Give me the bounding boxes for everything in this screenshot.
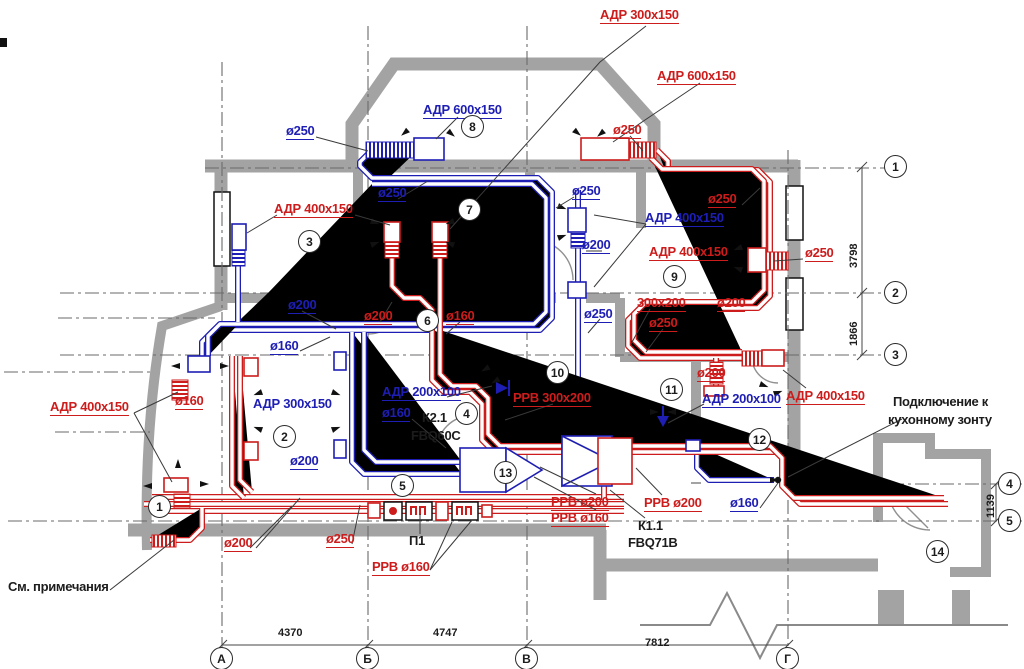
axis-bubble-В: В <box>515 647 538 669</box>
label-ø250-4: ø250 <box>286 124 314 140</box>
exhaust-diffuser-room7 <box>432 222 448 242</box>
supply-diffuser-room2-top <box>334 352 346 370</box>
label-адр-400x150-11: АДР 400x150 <box>649 245 728 261</box>
axis-bubble-Г: Г <box>776 647 799 669</box>
label-ø200-17: ø200 <box>288 298 316 314</box>
ventilation-plan: АДР 300x150АДР 600x150ø250АДР 600x150ø25… <box>0 0 1024 669</box>
label-кухонному-зонту-33: кухонному зонту <box>888 413 992 427</box>
label-адр-400x150-9: АДР 400x150 <box>645 211 724 227</box>
room-number-2: 2 <box>273 425 296 448</box>
fan-unit-k1-1 <box>562 436 632 486</box>
label-ø200-10: ø200 <box>582 238 610 254</box>
exhaust-diffuser-hall <box>164 478 188 492</box>
label-1866-50: 1866 <box>849 322 861 346</box>
label-ø160-22: ø160 <box>175 394 203 410</box>
exhaust-diffuser-room2-top <box>244 358 258 376</box>
label-ррв-ø200-35: РРВ ø200 <box>551 495 609 511</box>
room-number-6: 6 <box>416 309 439 332</box>
label-адр-400x150-31: АДР 400x150 <box>786 389 865 405</box>
room-number-9: 9 <box>663 265 686 288</box>
exhaust-grille-kitchen <box>762 350 784 366</box>
supply-diffuser-room8 <box>414 138 444 160</box>
room-number-4: 4 <box>455 402 478 425</box>
exhaust-diffuser-room9 <box>748 248 766 272</box>
label-fbq60c-27: FBQ60C <box>411 429 461 443</box>
label-п1-43: П1 <box>409 534 425 548</box>
supply-diffuser-room3 <box>232 224 246 250</box>
room-number-11: 11 <box>660 378 683 401</box>
label-ррв-ø160-36: РРВ ø160 <box>551 511 609 527</box>
label-300x200-13: 300x200 <box>637 296 686 312</box>
label-4747-47: 4747 <box>433 628 457 640</box>
label-ø250-8: ø250 <box>708 192 736 208</box>
label-ø200-14: ø200 <box>717 296 745 312</box>
axis-bubble-2: 2 <box>884 281 907 304</box>
label-ø200-34: ø200 <box>290 454 318 470</box>
label-1139-51: 1139 <box>986 494 998 518</box>
room-number-12: 12 <box>748 428 771 451</box>
label-адр-300x150-0: АДР 300x150 <box>600 8 679 24</box>
label-ø250-12: ø250 <box>805 246 833 262</box>
label-ø250-42: ø250 <box>326 532 354 548</box>
supply-diffuser-room2-bottom <box>334 440 346 458</box>
plan-canvas <box>0 0 1024 669</box>
room-number-8: 8 <box>461 115 484 138</box>
label-ррв-300x200-28: РРВ 300x200 <box>513 391 591 407</box>
label-ø250-2: ø250 <box>613 123 641 139</box>
label-адр-600x150-1: АДР 600x150 <box>657 69 736 85</box>
label-ø250-15: ø250 <box>649 316 677 332</box>
room-number-10: 10 <box>546 361 569 384</box>
label-адр-400x150-23: АДР 400x150 <box>50 400 129 416</box>
axis-bubble-5: 5 <box>998 509 1021 532</box>
label-ø250-7: ø250 <box>572 184 600 200</box>
room-number-14: 14 <box>926 540 949 563</box>
supply-unit-p1 <box>368 502 492 520</box>
label-ø200-29: ø200 <box>697 366 725 382</box>
label-fbq71b-40: FBQ71B <box>628 536 678 550</box>
label-ø160-20: ø160 <box>446 309 474 325</box>
exhaust-diffuser-room6 <box>384 222 400 242</box>
label-адр-200x100-24: АДР 200x100 <box>382 385 461 401</box>
label-ø200-41: ø200 <box>224 536 252 552</box>
label-ø160-38: ø160 <box>730 496 758 512</box>
exhaust-diffuser-room2-bottom <box>244 442 258 460</box>
label-к1-1-39: К1.1 <box>638 519 663 533</box>
label-ø160-18: ø160 <box>270 339 298 355</box>
axis-bubble-3: 3 <box>884 343 907 366</box>
axis-bubble-Б: Б <box>356 647 379 669</box>
supply-stub-room12 <box>686 440 700 451</box>
label-подключение-к-32: Подключение к <box>893 395 988 409</box>
label-ø200-19: ø200 <box>364 309 392 325</box>
label-адр-300x150-21: АДР 300x150 <box>253 397 332 411</box>
label-адр-200x100-30: АДР 200x100 <box>702 392 781 408</box>
supply-diffuser-room9-bottom <box>568 282 586 298</box>
label-ø250-5: ø250 <box>378 186 406 202</box>
label-ррв-ø200-37: РРВ ø200 <box>644 496 702 512</box>
axis-bubble-1: 1 <box>884 155 907 178</box>
room-number-1: 1 <box>148 495 171 518</box>
supply-diffuser-room1 <box>188 356 210 372</box>
room-number-5: 5 <box>391 474 414 497</box>
label-ррв-ø160-44: РРВ ø160 <box>372 560 430 576</box>
axis-bubble-А: А <box>210 647 233 669</box>
room-number-7: 7 <box>458 198 481 221</box>
label-3798-49: 3798 <box>849 244 861 268</box>
label-адр-600x150-3: АДР 600x150 <box>423 103 502 119</box>
room-number-3: 3 <box>298 230 321 253</box>
exhaust-diffuser-room8 <box>581 138 629 160</box>
label-7812-48: 7812 <box>645 638 669 650</box>
room-number-13: 13 <box>494 461 517 484</box>
label-ø160-25: ø160 <box>382 406 410 422</box>
label-к2-1-26: К2.1 <box>422 411 447 425</box>
axis-bubble-4: 4 <box>998 472 1021 495</box>
label-см-примечания-45: См. примечания <box>8 580 109 594</box>
walls-layer <box>0 38 1008 658</box>
label-адр-400x150-6: АДР 400x150 <box>274 202 353 218</box>
supply-diffuser-room9-top <box>568 208 586 232</box>
label-4370-46: 4370 <box>278 628 302 640</box>
label-ø250-16: ø250 <box>584 307 612 323</box>
